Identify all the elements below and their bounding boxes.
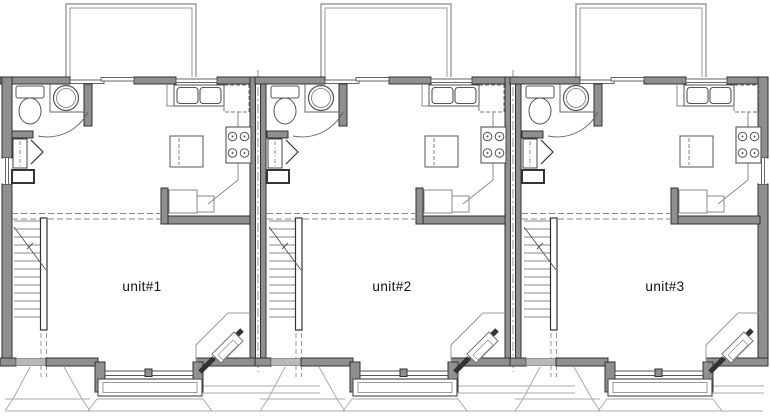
kitchen-sink-icon — [174, 85, 224, 106]
door-swing — [293, 112, 343, 137]
half-wall — [671, 188, 760, 224]
rear-sliding-door — [70, 78, 134, 84]
party-wall — [250, 70, 266, 372]
stove-icon — [736, 127, 761, 163]
half-wall — [161, 188, 250, 224]
bifold-door — [541, 140, 553, 164]
bathroom-sink-icon — [50, 84, 84, 112]
kitchen-island — [170, 136, 203, 167]
kitchen-island — [680, 136, 713, 167]
unit-1-label: unit#1 — [122, 279, 161, 294]
unit-labels: unit#1unit#2unit#3 — [122, 279, 684, 294]
kitchen-sink-icon — [684, 85, 734, 106]
deck — [321, 4, 451, 77]
floor-above-edge — [522, 214, 671, 220]
toilet-icon — [16, 86, 44, 124]
rear-window — [686, 79, 727, 83]
staircase — [269, 218, 302, 377]
bifold-door — [286, 140, 298, 164]
door-swing — [38, 112, 88, 137]
corner-fireplace — [451, 313, 504, 380]
refrigerator-icon — [479, 85, 504, 112]
half-wall — [416, 188, 505, 224]
rear-window — [431, 79, 472, 83]
bay-window — [608, 369, 712, 396]
rear-window — [176, 79, 217, 83]
storage-niche — [522, 170, 544, 183]
desk — [169, 190, 214, 213]
unit-3-label: unit#3 — [645, 279, 684, 294]
plan-root — [0, 4, 768, 411]
entry-door — [526, 359, 556, 366]
door-swing — [548, 112, 598, 137]
unit-3 — [510, 4, 768, 411]
entry-door — [271, 359, 301, 366]
closet — [522, 139, 553, 183]
floor-above-edge — [12, 214, 161, 220]
kitchen — [677, 84, 761, 213]
bathroom — [12, 84, 92, 138]
unit-2 — [255, 4, 575, 411]
refrigerator-icon — [224, 85, 249, 112]
kitchen — [422, 84, 506, 213]
exterior-wall-left — [2, 77, 12, 366]
bay-window — [98, 369, 202, 396]
toilet-icon — [271, 86, 299, 124]
window-seat — [98, 379, 202, 396]
storage-niche — [12, 170, 34, 183]
bifold-door — [31, 140, 43, 164]
window-seat — [353, 379, 457, 396]
rear-sliding-door — [325, 78, 389, 84]
kitchen-sink-icon — [429, 85, 479, 106]
staircase — [14, 218, 47, 377]
unit-1 — [0, 4, 320, 411]
stove-icon — [481, 127, 506, 163]
floor-plan-canvas: unit#1unit#2unit#3 — [0, 0, 770, 416]
stove-icon — [226, 127, 251, 163]
corner-fireplace — [196, 313, 249, 380]
desk — [424, 190, 469, 213]
bathroom — [267, 84, 347, 138]
storage-niche — [267, 170, 289, 183]
toilet-icon — [526, 86, 554, 124]
desk — [679, 190, 724, 213]
entry-door — [16, 359, 46, 366]
corner-fireplace — [706, 313, 762, 380]
bay-window — [353, 369, 457, 396]
closet — [12, 139, 43, 183]
kitchen-island — [425, 136, 458, 167]
staircase — [524, 218, 557, 377]
floorplan-page: unit#1unit#2unit#3 — [0, 0, 770, 416]
closet — [267, 139, 298, 183]
party-wall — [505, 70, 521, 372]
kitchen — [167, 84, 251, 213]
bathroom-sink-icon — [305, 84, 339, 112]
bathroom-sink-icon — [560, 84, 594, 112]
side-window — [3, 158, 11, 184]
rear-sliding-door — [580, 78, 644, 84]
floor-above-edge — [267, 214, 416, 220]
refrigerator-icon — [734, 85, 759, 112]
unit-2-label: unit#2 — [372, 279, 411, 294]
bathroom — [522, 84, 602, 138]
window-seat — [608, 379, 712, 396]
deck — [66, 4, 196, 77]
deck — [576, 4, 706, 77]
